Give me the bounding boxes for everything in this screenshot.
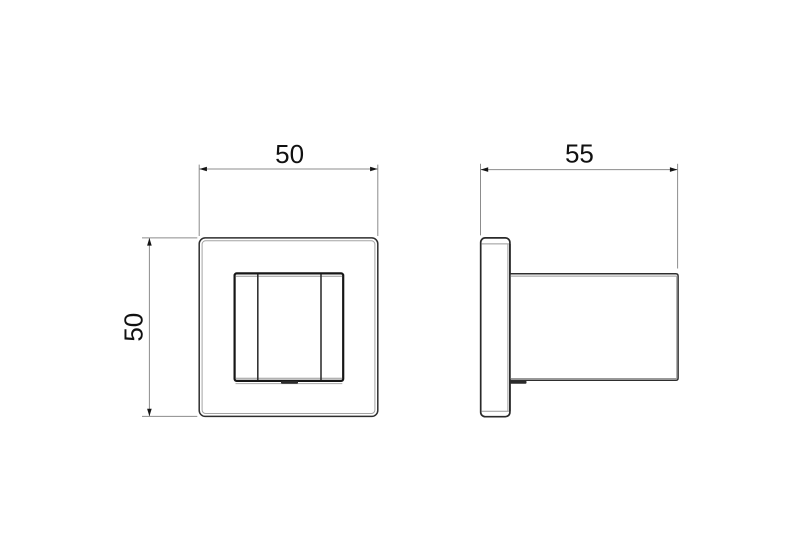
svg-text:50: 50 bbox=[275, 139, 304, 169]
svg-text:55: 55 bbox=[565, 139, 594, 169]
svg-text:50: 50 bbox=[119, 313, 149, 342]
